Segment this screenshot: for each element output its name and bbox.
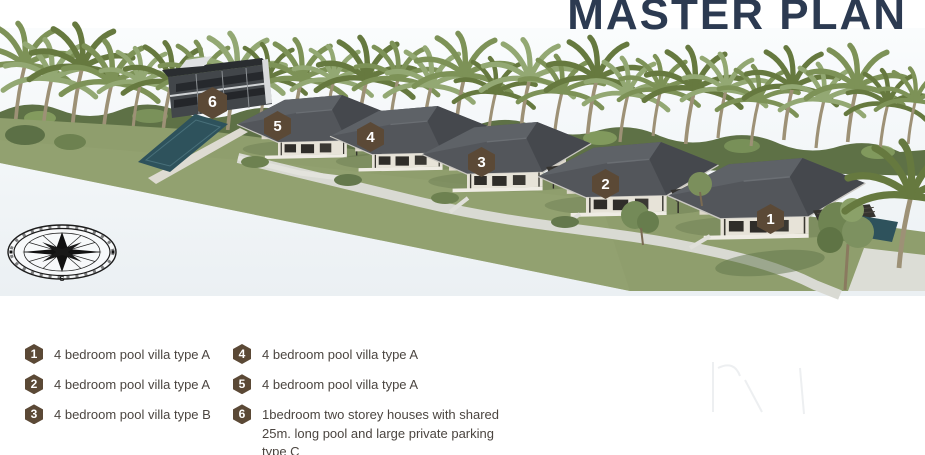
- master-plan-page: .p1{stroke:#93a873}.p2{stroke:#7d9257}.p…: [0, 0, 925, 455]
- legend-marker-number: 1: [31, 347, 38, 361]
- legend-marker-number: 6: [239, 407, 246, 421]
- legend-marker-hexagon: 1: [25, 344, 43, 364]
- legend-item-1: 1 4 bedroom pool villa type A: [25, 344, 221, 364]
- legend-item-5: 5 4 bedroom pool villa type A: [233, 374, 501, 394]
- compass-south-label: S: [59, 274, 64, 283]
- legend-column-1: 1 4 bedroom pool villa type A 2 4 bedroo…: [25, 344, 221, 435]
- legend-marker-hexagon: 3: [25, 404, 43, 424]
- legend-marker-hexagon: 5: [233, 374, 251, 394]
- legend-marker-number: 3: [31, 407, 38, 421]
- legend-item-label: 4 bedroom pool villa type A: [54, 344, 210, 364]
- legend-item-4: 4 4 bedroom pool villa type A: [233, 344, 501, 364]
- legend-marker-hexagon: 2: [25, 374, 43, 394]
- legend-item-6: 6 1bedroom two storey houses with shared…: [233, 404, 501, 455]
- legend-item-label: 1bedroom two storey houses with shared 2…: [262, 404, 501, 455]
- legend-marker-number: 4: [239, 347, 246, 361]
- legend-column-2: 4 4 bedroom pool villa type A 5 4 bedroo…: [233, 344, 501, 455]
- legend-item-label: 4 bedroom pool villa type A: [54, 374, 210, 394]
- marker-number: 6: [208, 94, 217, 112]
- marker-number: 1: [766, 211, 774, 228]
- legend: 1 4 bedroom pool villa type A 2 4 bedroo…: [25, 344, 501, 455]
- faint-watermark: [713, 362, 804, 414]
- page-title: MASTER PLAN: [567, 0, 907, 37]
- marker-number: 5: [273, 118, 281, 135]
- marker-number: 2: [601, 176, 609, 193]
- marker-number: 3: [477, 154, 485, 171]
- marker-number: 4: [366, 129, 374, 146]
- legend-marker-hexagon: 6: [233, 404, 251, 424]
- legend-item-label: 4 bedroom pool villa type A: [262, 344, 418, 364]
- legend-marker-hexagon: 4: [233, 344, 251, 364]
- legend-marker-number: 2: [31, 377, 38, 391]
- legend-marker-number: 5: [239, 377, 246, 391]
- legend-item-3: 3 4 bedroom pool villa type B: [25, 404, 221, 424]
- legend-item-label: 4 bedroom pool villa type A: [262, 374, 418, 394]
- legend-item-label: 4 bedroom pool villa type B: [54, 404, 211, 424]
- legend-item-2: 2 4 bedroom pool villa type A: [25, 374, 221, 394]
